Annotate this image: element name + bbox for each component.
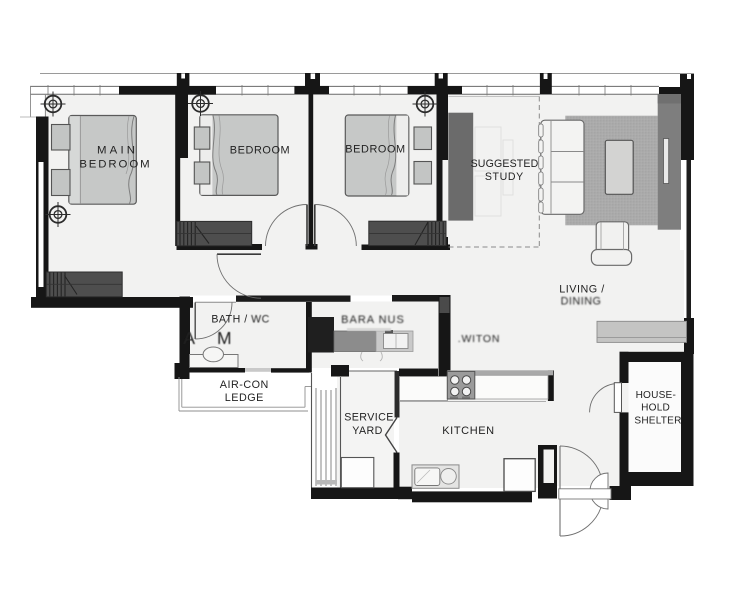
svg-text:.WITON: .WITON: [458, 333, 501, 345]
svg-text:AIR-CON: AIR-CON: [220, 379, 269, 391]
svg-text:WC: WC: [251, 313, 270, 325]
svg-text:BEDROOM: BEDROOM: [79, 158, 151, 170]
svg-text:BATH /: BATH /: [211, 313, 247, 325]
svg-text:KITCHEN: KITCHEN: [442, 425, 494, 437]
svg-text:MAIN: MAIN: [97, 144, 138, 156]
svg-text:BEDROOM: BEDROOM: [230, 144, 290, 156]
svg-text:LIVING /: LIVING /: [559, 284, 604, 296]
svg-text:STUDY: STUDY: [485, 171, 524, 183]
svg-text:SUGGESTED: SUGGESTED: [471, 158, 539, 170]
svg-text:DINING: DINING: [561, 296, 602, 308]
svg-text:LEDGE: LEDGE: [225, 392, 264, 404]
svg-text:SHELTER: SHELTER: [634, 416, 681, 427]
svg-text:YARD: YARD: [352, 425, 383, 437]
svg-text:A M: A M: [183, 328, 240, 348]
svg-text:BEDROOM: BEDROOM: [345, 144, 405, 156]
svg-text:HOUSE-: HOUSE-: [636, 390, 676, 401]
svg-text:SERVICE: SERVICE: [344, 412, 394, 424]
svg-text:BARA NUS: BARA NUS: [341, 314, 405, 326]
svg-text:HOLD: HOLD: [641, 403, 670, 414]
